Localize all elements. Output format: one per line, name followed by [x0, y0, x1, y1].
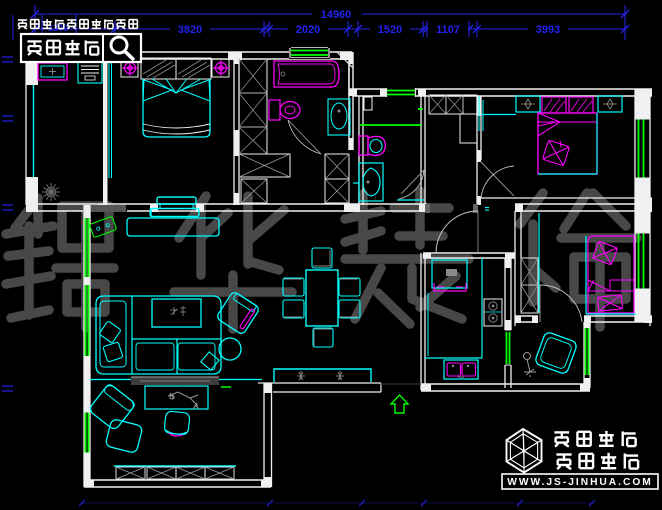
svg-text:2020: 2020 — [296, 24, 320, 36]
svg-text:14960: 14960 — [321, 9, 352, 21]
svg-text:1520: 1520 — [378, 24, 402, 36]
svg-text:3993: 3993 — [536, 24, 560, 36]
svg-text:WWW.JS-JINHUA.COM: WWW.JS-JINHUA.COM — [507, 477, 653, 488]
svg-text:3820: 3820 — [178, 24, 202, 36]
svg-text:1107: 1107 — [436, 24, 460, 36]
